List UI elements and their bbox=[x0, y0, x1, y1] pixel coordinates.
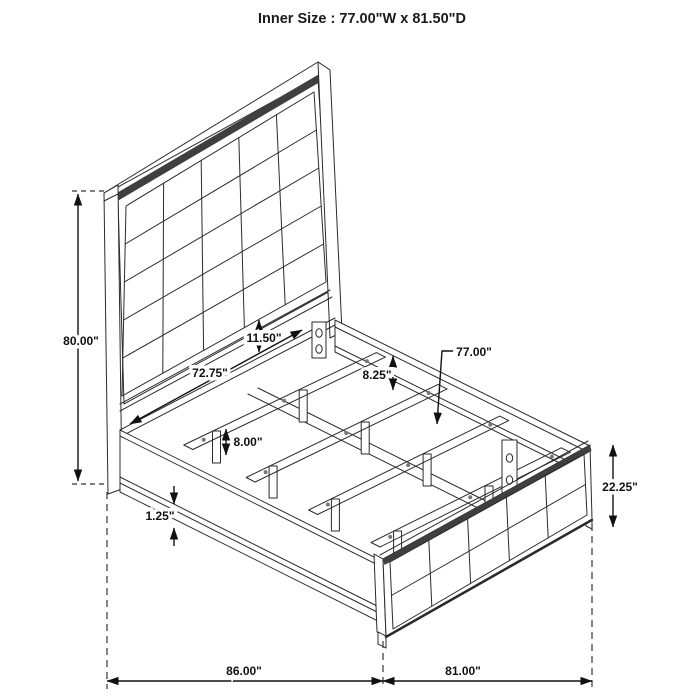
dim-trim-label: 1.25" bbox=[145, 509, 174, 523]
bracket-hole bbox=[316, 345, 322, 353]
dim-slat-length-label: 77.00" bbox=[456, 345, 492, 359]
bed-dimension-diagram: Inner Size : 77.00"W x 81.50"D bbox=[0, 0, 700, 700]
leg bbox=[213, 431, 221, 463]
diagram-title: Inner Size : 77.00"W x 81.50"D bbox=[258, 11, 466, 27]
footboard bbox=[374, 441, 592, 648]
leg bbox=[269, 466, 277, 498]
dim-footboard-height-label: 22.25" bbox=[602, 480, 638, 494]
headboard-bracket bbox=[312, 322, 326, 358]
dim-inner-width-label: 72.75" bbox=[192, 366, 228, 380]
bracket-hole bbox=[316, 329, 322, 337]
dim-overall-width-label: 81.00" bbox=[445, 664, 481, 678]
bed-dimension-diagram-page: Inner Size : 77.00"W x 81.50"D bbox=[0, 0, 700, 700]
left-rail-face bbox=[120, 430, 382, 623]
dim-panel-gap-label: 11.50" bbox=[246, 331, 281, 345]
dim-overall-length-label: 86.00" bbox=[226, 664, 262, 678]
right-rail-face bbox=[335, 320, 590, 478]
headboard bbox=[104, 62, 342, 494]
dim-leg-height-label: 8.00" bbox=[233, 435, 262, 449]
dim-headboard-height-label: 80.00" bbox=[63, 334, 99, 348]
leg bbox=[331, 499, 339, 531]
dim-rail-to-slat-label: 8.25" bbox=[362, 368, 391, 382]
headboard-panel-face bbox=[118, 80, 332, 404]
bracket-hole bbox=[506, 454, 512, 462]
